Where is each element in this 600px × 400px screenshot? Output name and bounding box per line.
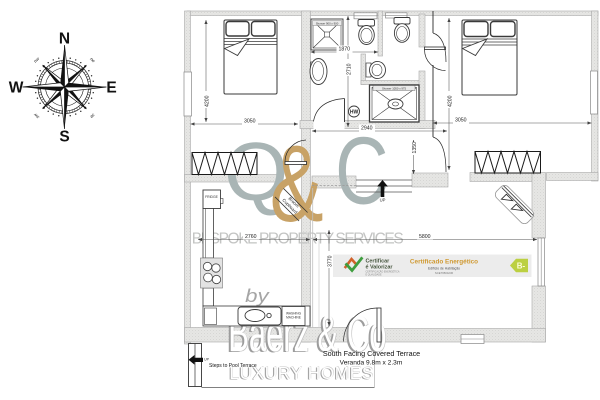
svg-text:&: & xyxy=(270,123,324,245)
svg-text:E: E xyxy=(106,80,116,97)
svg-text:UP: UP xyxy=(204,358,210,362)
svg-text:FRIDGE: FRIDGE xyxy=(205,195,219,199)
svg-text:SCE76504236: SCE76504236 xyxy=(435,271,454,275)
svg-text:S: S xyxy=(59,129,69,146)
svg-text:3050: 3050 xyxy=(244,119,256,125)
svg-text:2710: 2710 xyxy=(347,63,353,75)
svg-text:Certificado Energético: Certificado Energético xyxy=(410,259,478,266)
svg-text:B-: B- xyxy=(517,262,526,271)
svg-text:4200: 4200 xyxy=(205,95,211,107)
svg-text:MACHINE: MACHINE xyxy=(286,316,301,320)
svg-text:3050: 3050 xyxy=(455,118,467,124)
svg-text:Shower 900 x 900: Shower 900 x 900 xyxy=(316,21,339,25)
svg-text:South Facing Covered Terrace: South Facing Covered Terrace xyxy=(323,349,420,358)
svg-text:3770: 3770 xyxy=(328,255,334,267)
svg-text:UP: UP xyxy=(380,198,386,203)
svg-text:Shower 1050 x 975: Shower 1050 x 975 xyxy=(382,86,407,90)
svg-text:Veranda 9.8m x 2.3m: Veranda 9.8m x 2.3m xyxy=(340,360,403,367)
svg-text:N: N xyxy=(59,31,70,48)
svg-text:Edifício de Habitação: Edifício de Habitação xyxy=(428,267,460,271)
svg-text:BESPOKE PROPERTY SERVICES: BESPOKE PROPERTY SERVICES xyxy=(192,231,404,248)
svg-text:HW: HW xyxy=(350,110,359,116)
svg-text:Steps to Pool Terrace: Steps to Pool Terrace xyxy=(209,363,257,369)
svg-text:4200: 4200 xyxy=(448,95,454,107)
svg-text:C: C xyxy=(335,117,388,225)
svg-text:2760: 2760 xyxy=(245,234,257,240)
svg-text:2940: 2940 xyxy=(361,126,373,132)
svg-text:by: by xyxy=(245,287,270,307)
svg-text:1350: 1350 xyxy=(412,142,418,154)
svg-text:5800: 5800 xyxy=(419,234,431,240)
svg-text:1870: 1870 xyxy=(339,47,351,53)
svg-text:E QUALIDADE: E QUALIDADE xyxy=(366,273,382,276)
svg-text:W: W xyxy=(9,80,24,97)
